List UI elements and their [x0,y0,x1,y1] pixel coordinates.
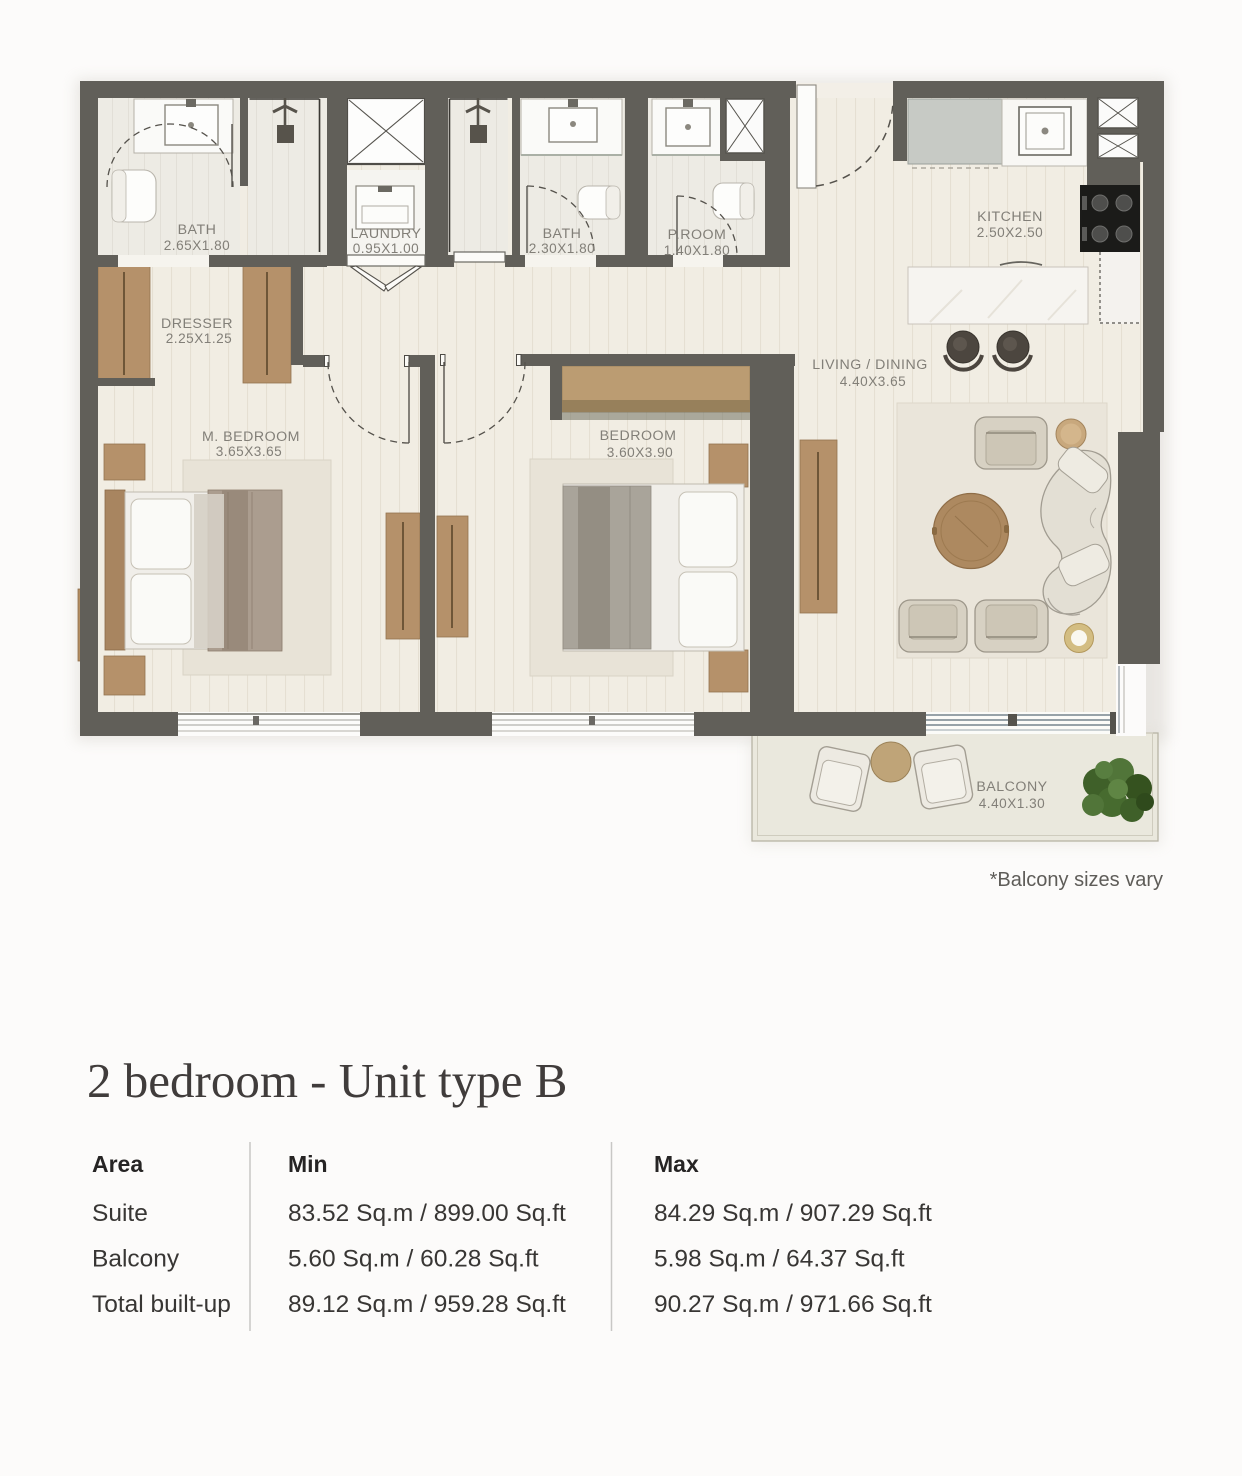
svg-text:LIVING / DINING: LIVING / DINING [812,357,928,373]
svg-text:DRESSER: DRESSER [161,316,233,332]
svg-text:89.12 Sq.m / 959.28 Sq.ft: 89.12 Sq.m / 959.28 Sq.ft [288,1291,566,1318]
svg-text:Area: Area [92,1151,143,1177]
svg-text:2.50X2.50: 2.50X2.50 [977,225,1043,240]
svg-text:Suite: Suite [92,1200,148,1227]
svg-text:P.ROOM: P.ROOM [668,227,727,243]
svg-text:2.30X1.80: 2.30X1.80 [529,241,595,256]
svg-text:3.60X3.90: 3.60X3.90 [607,445,673,460]
svg-text:Balcony: Balcony [92,1246,180,1273]
svg-text:2.25X1.25: 2.25X1.25 [166,331,232,346]
svg-text:2 bedroom - Unit type B: 2 bedroom - Unit type B [87,1053,567,1108]
svg-text:BATH: BATH [543,226,582,242]
svg-text:Min: Min [288,1151,328,1177]
svg-text:M. BEDROOM: M. BEDROOM [202,429,300,445]
svg-text:3.65X3.65: 3.65X3.65 [216,444,282,459]
svg-text:BATH: BATH [178,222,217,238]
svg-text:Max: Max [654,1151,699,1177]
svg-text:84.29 Sq.m / 907.29 Sq.ft: 84.29 Sq.m / 907.29 Sq.ft [654,1200,932,1227]
svg-text:0.95X1.00: 0.95X1.00 [353,241,419,256]
svg-text:KITCHEN: KITCHEN [977,209,1043,225]
svg-text:*Balcony sizes vary: *Balcony sizes vary [990,869,1163,891]
svg-text:2.65X1.80: 2.65X1.80 [164,238,230,253]
svg-text:90.27 Sq.m / 971.66 Sq.ft: 90.27 Sq.m / 971.66 Sq.ft [654,1291,932,1318]
svg-text:5.98 Sq.m / 64.37 Sq.ft: 5.98 Sq.m / 64.37 Sq.ft [654,1246,905,1273]
svg-text:LAUNDRY: LAUNDRY [350,226,421,242]
svg-text:83.52 Sq.m / 899.00 Sq.ft: 83.52 Sq.m / 899.00 Sq.ft [288,1200,566,1227]
svg-text:4.40X3.65: 4.40X3.65 [840,374,906,389]
svg-text:BEDROOM: BEDROOM [600,428,677,444]
svg-text:BALCONY: BALCONY [976,779,1047,795]
svg-text:5.60 Sq.m / 60.28 Sq.ft: 5.60 Sq.m / 60.28 Sq.ft [288,1246,539,1273]
svg-text:Total built-up: Total built-up [92,1291,231,1318]
svg-text:4.40X1.30: 4.40X1.30 [979,796,1045,811]
svg-text:1.40X1.80: 1.40X1.80 [664,243,730,258]
